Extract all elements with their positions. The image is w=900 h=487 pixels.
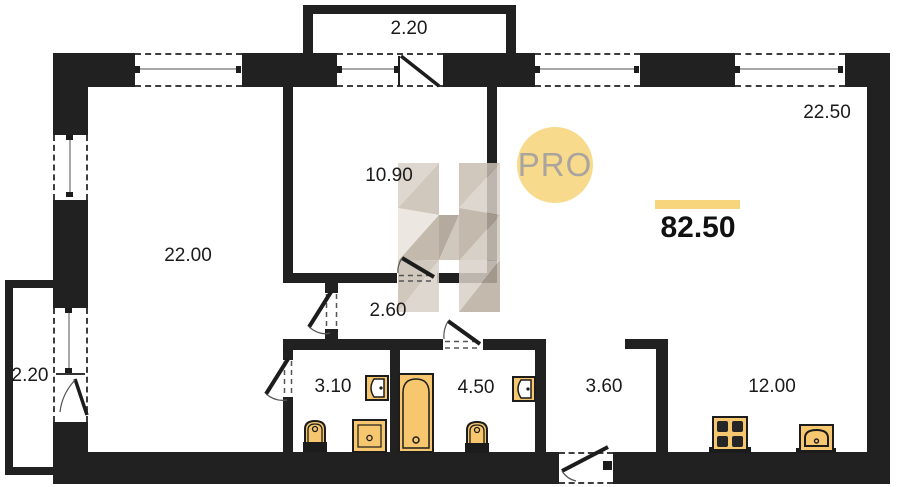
kitchen-sink-icon [796,424,836,453]
entrance-opening [559,452,613,484]
wall-balcony-top-top [303,5,516,14]
wall-balcony-top-right [506,5,516,53]
watermark-h-logo [398,163,500,312]
toilet-icon [464,420,490,454]
window-balcony-door-left [53,308,88,422]
wall-bathsmall-left [283,407,293,452]
total-area-value: 82.50 [652,211,744,245]
wall-bath-top-left [283,339,443,350]
wall-bathsmall-post-top [283,350,293,360]
floor-plan: 2.20 22.50 10.90 22.00 2.60 2.20 3.10 4.… [0,0,900,487]
door-room-left-to-bath-small [266,359,292,400]
room-label-balcony-top: 2.20 [391,18,428,40]
wall-partition-left-room [283,87,293,273]
window-room-left-side [53,135,88,200]
pro-logo-badge: PRO [517,127,593,203]
bathtub-icon [398,373,434,453]
room-label-room-left: 22.00 [164,245,212,267]
window-living-1 [535,53,640,87]
wall-outer-right [867,53,890,484]
pro-logo-text: PRO [518,146,593,184]
total-area-underline [655,200,740,209]
window-balcony-door-top [337,53,443,87]
wall-sink-icon [365,375,389,401]
room-label-kitchen: 12.00 [748,376,796,398]
wall-outer-bottom [53,452,890,484]
wall-room-middle-bottom-left [283,273,397,283]
room-label-living: 22.50 [803,102,851,124]
toilet-icon [302,419,328,453]
stove-icon [709,416,751,453]
wall-doorpost-hall-top [325,283,338,293]
wall-bath-entry [535,339,546,452]
wall-kitchen-corner-v [656,339,668,452]
window-room-left [135,53,242,87]
door-hall-to-bath-large [444,321,481,348]
window-living-2 [735,53,845,87]
room-label-entry-hall: 3.60 [586,376,623,398]
room-label-hallway: 2.60 [370,300,407,322]
door-hall-to-room-left [309,292,337,334]
room-label-balcony-left: 2.20 [12,365,49,387]
room-label-bath-small: 3.10 [315,376,352,398]
shower-icon [352,419,387,453]
room-label-bath-large: 4.50 [458,377,495,399]
wall-doorpost-hall-bottom [325,329,338,339]
wall-balcony-left-bottom [5,467,53,475]
room-label-room-middle: 10.90 [365,165,413,187]
wall-sink-icon [512,376,536,402]
wall-bathsmall-post-bottom [283,397,293,407]
